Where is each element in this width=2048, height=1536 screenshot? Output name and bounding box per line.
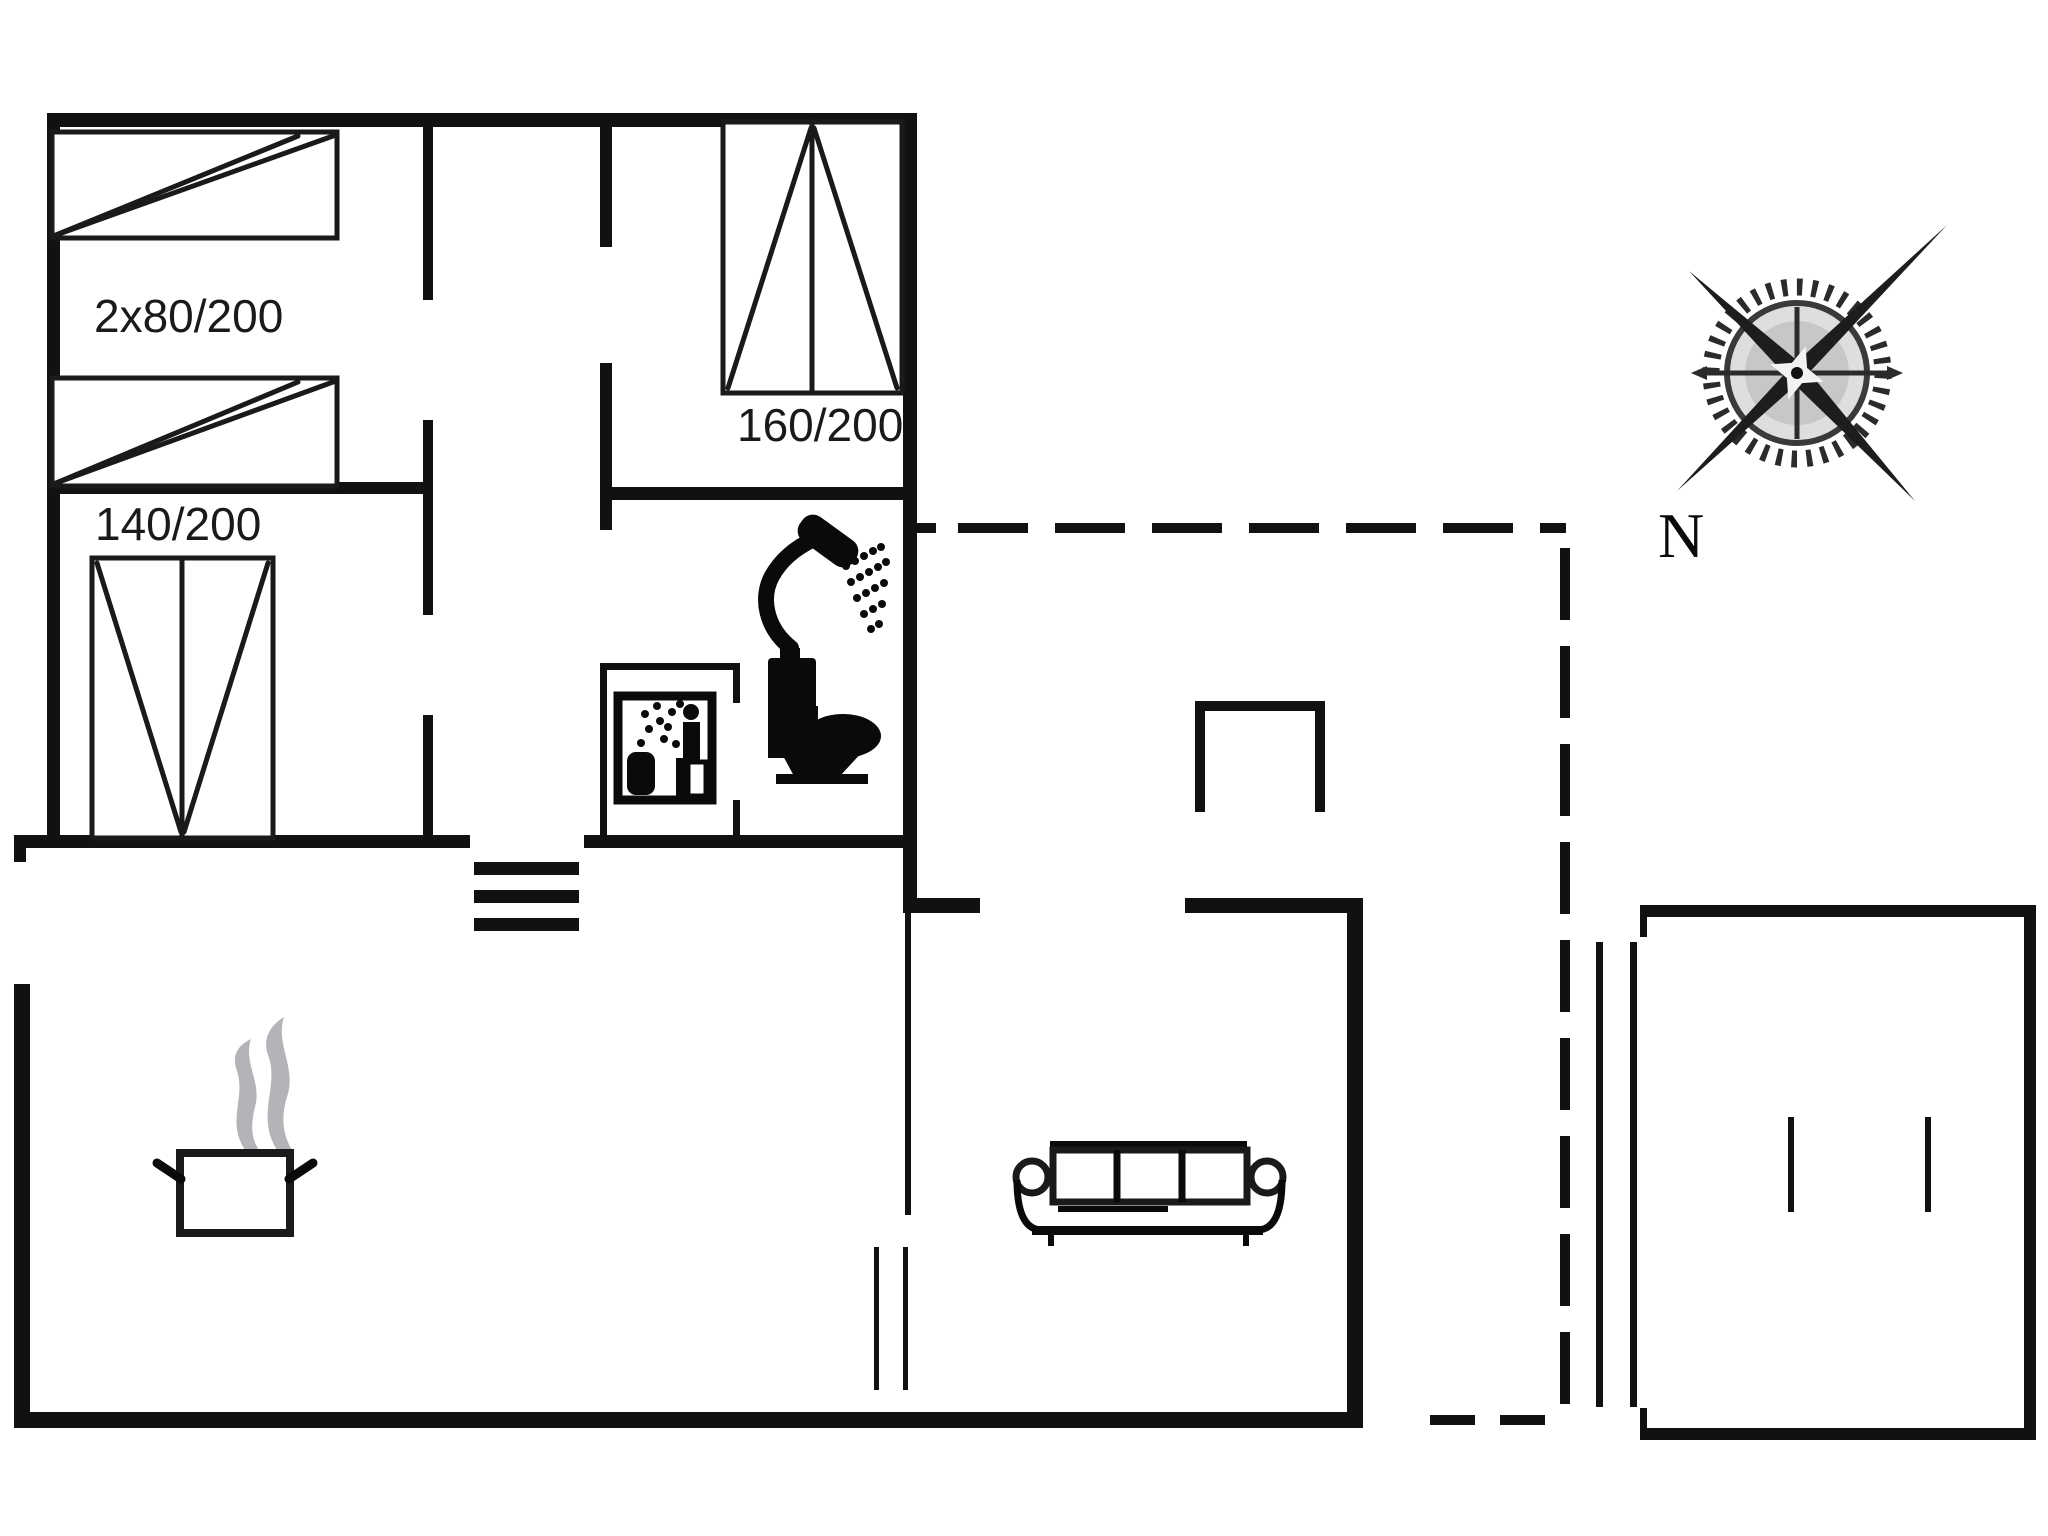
sauna-pictogram-icon [618, 696, 712, 800]
sofa-armrest-left [1016, 1161, 1048, 1193]
wall-living-left [14, 984, 30, 1428]
wall-kitchen-divider [905, 913, 911, 1215]
wall-bedroom3-bottom [607, 487, 903, 500]
annex-top-cap [1640, 905, 1647, 937]
cooking-pot-steam-icon [157, 1017, 313, 1233]
sauna-bench [688, 762, 706, 796]
step-3 [474, 918, 579, 931]
wall-a-seg3 [423, 715, 433, 838]
sauna-stove [627, 752, 655, 795]
wall-stub [14, 848, 26, 862]
wall-living-bottom [14, 1412, 1363, 1428]
floor-plan-drawing: 2x80/200 140/200 160/200 [0, 0, 2048, 1536]
terrace-dashed-boundary [917, 528, 1566, 1420]
wall-wing-bottom-right [584, 835, 917, 848]
bedroom2-double-bed [92, 558, 273, 838]
wall-a-seg2 [423, 420, 433, 615]
annex-open-side-line2 [1630, 942, 1637, 1407]
toilet-icon [768, 648, 881, 784]
wall-sauna-top [600, 663, 740, 670]
annex-building [1596, 905, 2036, 1440]
annex-post-mark-1 [1788, 1117, 1794, 1212]
door-jamb-right [903, 1247, 908, 1390]
terrace-niche [1200, 706, 1320, 812]
sofa-armrest-right [1251, 1161, 1283, 1193]
annex-wall-top [1640, 905, 2036, 917]
wall-sauna-right-upper [733, 663, 740, 703]
pot-body [180, 1153, 290, 1233]
sofa-leg-left [1048, 1235, 1054, 1246]
steam-wisp-1 [235, 1039, 259, 1150]
wall-living-top-left-seg [903, 898, 980, 913]
wall-sauna-right-lower [733, 800, 740, 838]
wall-living-right [1347, 898, 1363, 1428]
entrance-steps-icon [474, 862, 579, 931]
wall-sauna-left [600, 663, 607, 838]
step-2 [474, 890, 579, 903]
annex-open-side-line1 [1596, 942, 1603, 1407]
wall-a-seg1 [423, 127, 433, 300]
sofa-base [1032, 1226, 1263, 1235]
wall-living-top-right-seg [1185, 898, 1363, 913]
annex-wall-right [2024, 905, 2036, 1440]
sofa-icon [1016, 1141, 1283, 1246]
bed-size-label-2x80: 2x80/200 [94, 290, 283, 342]
wall-b-seg2 [600, 363, 612, 530]
annex-bottom-cap [1640, 1408, 1647, 1440]
wall-right [903, 113, 917, 913]
annex-post-mark-2 [1925, 1117, 1931, 1212]
steam-wisp-2 [266, 1017, 292, 1150]
annex-wall-bottom [1640, 1428, 2036, 1440]
shower-icon [766, 509, 890, 648]
floor-plan-page: 2x80/200 140/200 160/200 [0, 0, 2048, 1536]
bed-size-label-140: 140/200 [95, 498, 261, 550]
bed-size-label-160: 160/200 [737, 399, 903, 451]
bedroom3-double-bed [723, 122, 902, 393]
step-1 [474, 862, 579, 875]
north-label: N [1658, 500, 1704, 571]
sofa-leg-right [1243, 1235, 1249, 1246]
wall-b-seg1 [600, 127, 612, 247]
compass-rose-icon [1677, 225, 1947, 501]
sofa-cushions [1053, 1150, 1247, 1202]
door-jamb-left [874, 1247, 879, 1390]
